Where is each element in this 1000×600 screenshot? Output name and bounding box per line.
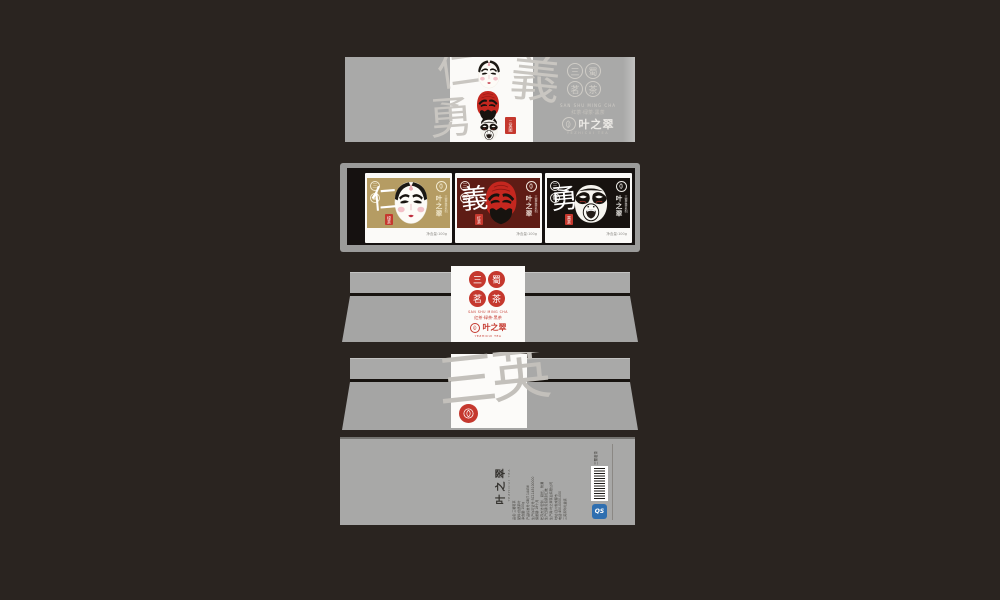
barcode-bars (594, 468, 605, 499)
brand-name: 叶之翠 (483, 322, 507, 333)
card-art-black: 三蜀 勇 黑茶 叶之翠 三蜀茗茶系列 (547, 178, 630, 228)
brand-name-en: YEZHICUI TEA (453, 334, 523, 338)
packaging-mockup: 仁 義 勇 三英图 三蜀茗茶 SAN SHU MING CHA 红茶·绿茶·黑茶… (0, 0, 1000, 600)
series-seal-grid-red: 三蜀茗茶 (469, 271, 505, 307)
tea-card-yi: 三蜀 義 红茶 叶之翠 三蜀茗茶系列 净含量:100g (455, 173, 542, 243)
watermark-sanying: 三英 (434, 352, 548, 413)
tea-type-seal: 红茶 (475, 214, 483, 225)
info-line: 三英系列礼盒装 (563, 450, 568, 520)
virtue-character: 勇 (550, 185, 579, 214)
opera-mask-white-icon (471, 59, 507, 89)
label-edge-rule (612, 444, 613, 520)
seal-character: 三 (469, 271, 486, 288)
brand-name: 叶之翠 (579, 116, 615, 132)
series-label-rotated: 三蜀茗茶 (594, 449, 602, 465)
seal-character: 蜀 (488, 271, 505, 288)
series-title-vertical: 三蜀茗茶系列 (624, 195, 628, 213)
net-weight-label: 净含量:100g (426, 232, 447, 237)
tea-card-yong: 三蜀 勇 黑茶 叶之翠 三蜀茗茶系列 净含量:100g (545, 173, 632, 243)
lid-center-strip: 三蜀茗茶 SAN SHU MING CHA 红茶·绿茶·黑茶 叶之翠 YEZHI… (451, 266, 525, 342)
seal-character: 茗 (469, 290, 486, 307)
net-weight-label: 净含量:100g (516, 232, 537, 237)
seal-character: 茗 (567, 81, 583, 97)
tea-type-seal: 黑茶 (565, 214, 573, 225)
series-name-en: SAN SHU MING CHA (453, 310, 523, 314)
brand-logo-row: 叶之翠 (540, 116, 635, 132)
tea-card-ren: 三蜀 仁 绿茶 叶之翠 三蜀茗茶系列 净含量:100g (365, 173, 452, 243)
seal-character: 三 (567, 63, 583, 79)
seal-character: 茶 (585, 81, 601, 97)
virtue-character: 仁 (370, 185, 399, 214)
tea-type-text: 绿茶 (387, 216, 391, 224)
tea-types-label: 红茶·绿茶·黑茶 (453, 315, 523, 321)
barcode (591, 466, 608, 501)
brand-name-vertical: 叶之翠 (613, 195, 623, 218)
red-stamp-text: 三英图 (509, 120, 513, 132)
card-art-maroon: 三蜀 義 红茶 叶之翠 三蜀茗茶系列 (457, 178, 540, 228)
brand-red-seal-icon (459, 404, 478, 423)
brand-name-vertical: 叶之翠 (433, 195, 443, 218)
brand-name-vertical: 叶之翠 (523, 195, 533, 218)
brand-block-rotated: 叶之翠 YEZHICUI TEA (496, 455, 510, 515)
series-title-vertical: 三蜀茗茶系列 (534, 195, 538, 213)
card-art-gold: 三蜀 仁 绿茶 叶之翠 三蜀茗茶系列 (367, 178, 450, 228)
tea-type-seal: 绿茶 (385, 214, 393, 225)
opera-mask-black-icon (469, 117, 509, 142)
net-weight-label: 净含量:100g (606, 232, 627, 237)
box-bottom-panel: 叶之翠 YEZHICUI TEA 品名:三蜀茗茶配料:优质茶叶净含量:100g产… (340, 437, 635, 525)
seal-character: 茶 (488, 290, 505, 307)
leaf-logo-icon (616, 181, 627, 192)
display-tray: 三蜀 仁 绿茶 叶之翠 三蜀茗茶系列 净含量:100g 三蜀 義 红茶 (340, 163, 640, 252)
red-stamp-seal: 三英图 (505, 117, 516, 134)
brand-name-en: YEZHICUI TEA (540, 131, 635, 135)
brand-logo-row: 叶之翠 (453, 322, 523, 333)
seal-character: 蜀 (585, 63, 601, 79)
series-title-vertical: 三蜀茗茶系列 (444, 195, 448, 213)
box-front-panel: 仁 義 勇 三英图 三蜀茗茶 SAN SHU MING CHA 红茶·绿茶·黑茶… (345, 57, 635, 142)
brand-name: 叶之翠 (496, 455, 507, 515)
watermark-yi: 義 (508, 57, 563, 107)
product-info-block: 品名:三蜀茗茶配料:优质茶叶净含量:100g产品标准号:GB/T 14456生产… (512, 450, 590, 520)
leaf-logo-icon (562, 117, 576, 131)
virtue-character: 義 (460, 185, 489, 214)
qs-mark: QS (592, 504, 607, 519)
lid-back-panel: 三英 (342, 352, 638, 430)
leaf-logo-icon (436, 181, 447, 192)
tea-type-text: 黑茶 (567, 216, 571, 224)
leaf-logo-icon (526, 181, 537, 192)
leaf-logo-icon (470, 323, 480, 333)
series-seal-grid: 三蜀茗茶 (567, 63, 601, 97)
tea-type-text: 红茶 (477, 216, 481, 224)
lid-front-panel: 三蜀茗茶 SAN SHU MING CHA 红茶·绿茶·黑茶 叶之翠 YEZHI… (342, 265, 638, 342)
brand-name-en: YEZHICUI TEA (507, 455, 511, 515)
